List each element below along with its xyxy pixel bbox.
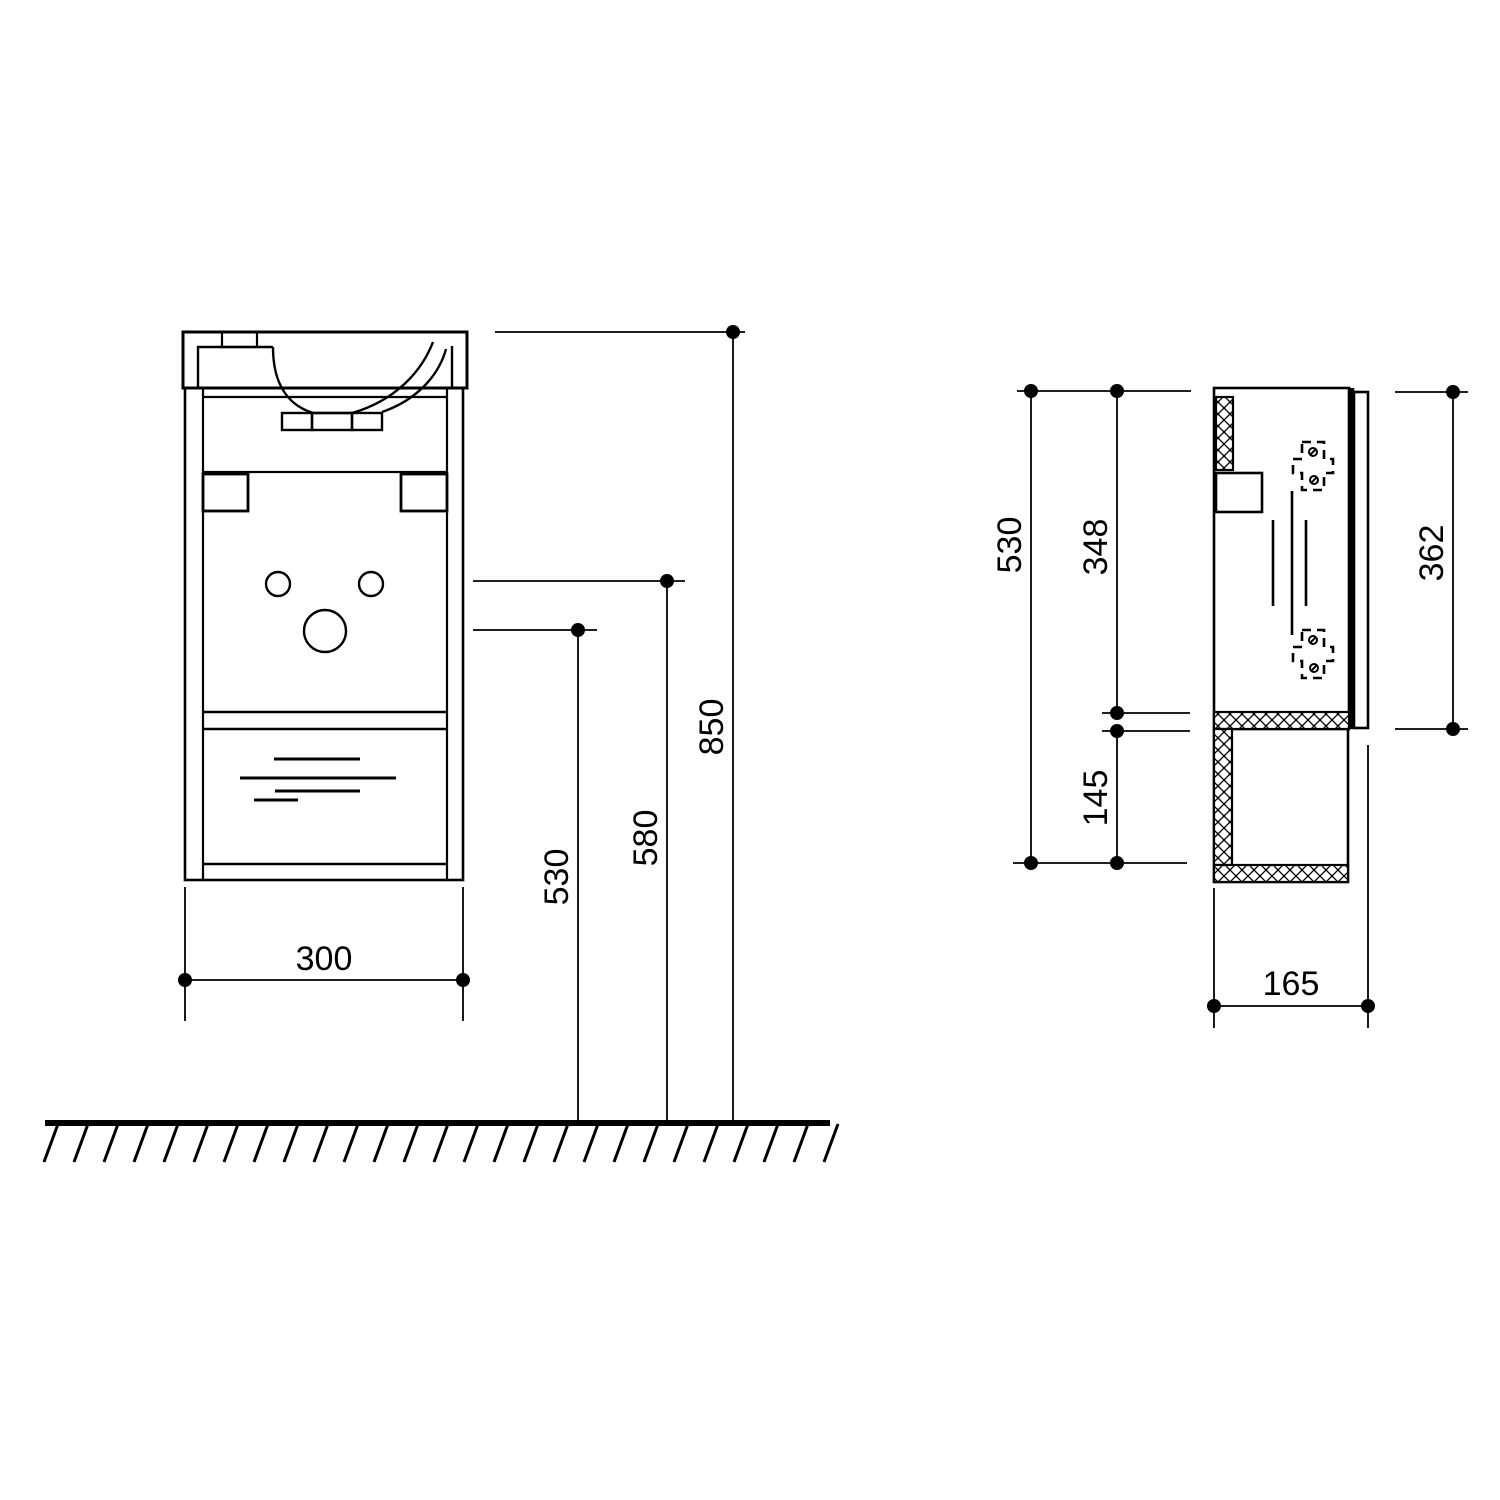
front-view: 300 850 580 530 bbox=[44, 325, 838, 1162]
drawer-bottom-section bbox=[1214, 865, 1348, 882]
dim-label-145: 145 bbox=[1077, 770, 1115, 827]
drawer-back-section bbox=[1214, 729, 1232, 865]
side-upper-cabinet bbox=[1214, 388, 1352, 729]
dim-label-580: 580 bbox=[627, 810, 665, 867]
technical-drawing-page: 300 850 580 530 bbox=[0, 0, 1500, 1500]
dim-label-300: 300 bbox=[296, 940, 353, 978]
mounting-bracket-side bbox=[1216, 473, 1262, 512]
dim-label-530-side: 530 bbox=[991, 517, 1029, 574]
dim-width-300: 300 bbox=[178, 887, 470, 1021]
floor-ground-line bbox=[44, 1123, 838, 1162]
dim-label-165: 165 bbox=[1263, 965, 1320, 1003]
tap-block bbox=[222, 332, 257, 347]
dim-side-145: 145 bbox=[1077, 724, 1190, 870]
right-hinge-bracket bbox=[401, 474, 447, 511]
dim-height-580: 580 bbox=[473, 574, 685, 1123]
fixing-hole-right bbox=[359, 572, 383, 596]
side-door-panel bbox=[1354, 392, 1368, 728]
dim-label-348: 348 bbox=[1077, 519, 1115, 576]
side-grain-lines bbox=[1273, 491, 1306, 635]
side-drawer-box bbox=[1214, 729, 1348, 882]
bottom-panel-section bbox=[1214, 712, 1349, 729]
adjustable-hanger-top bbox=[1293, 442, 1333, 490]
dim-side-348: 348 bbox=[1077, 384, 1190, 720]
drain-hole bbox=[304, 610, 346, 652]
dim-label-530-front: 530 bbox=[538, 849, 576, 906]
washbasin-front bbox=[183, 332, 467, 430]
basin-bowl-edge bbox=[273, 347, 352, 413]
dim-height-850: 850 bbox=[495, 325, 745, 1123]
drain-blocks bbox=[282, 413, 382, 430]
dim-side-362: 362 bbox=[1395, 385, 1468, 736]
fixing-hole-left bbox=[266, 572, 290, 596]
side-view: 530 348 145 362 bbox=[991, 384, 1468, 1028]
cabinet-front bbox=[185, 388, 463, 880]
adjustable-hanger-bottom bbox=[1293, 630, 1333, 678]
wall-mount-rail-section bbox=[1216, 397, 1233, 470]
left-hinge-bracket bbox=[203, 474, 248, 511]
dim-label-850: 850 bbox=[693, 699, 731, 756]
dim-label-362: 362 bbox=[1413, 525, 1451, 582]
dim-height-530-front: 530 bbox=[473, 623, 597, 1123]
vanity-unit-dimension-drawing: 300 850 580 530 bbox=[0, 0, 1500, 1500]
drawer-grain-lines bbox=[240, 759, 396, 800]
